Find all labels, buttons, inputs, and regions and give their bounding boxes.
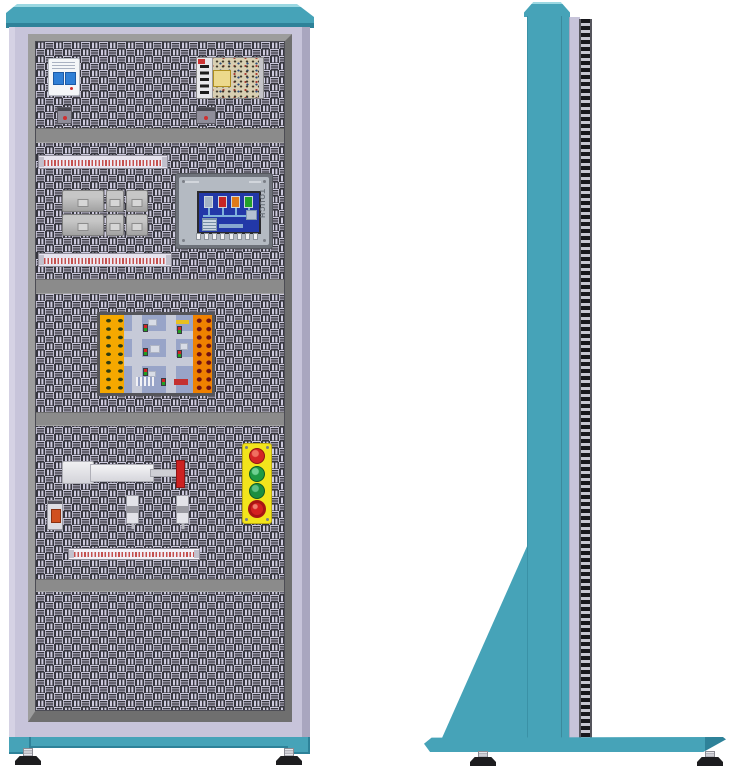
relay-block bbox=[126, 190, 148, 212]
relay-block bbox=[62, 214, 104, 236]
panel-divider bbox=[36, 412, 284, 426]
traffic-light-icon bbox=[162, 379, 165, 385]
hmi-model-mark bbox=[249, 181, 261, 183]
cabinet-base-strip bbox=[9, 737, 310, 748]
hmi-bezel: TOUCH bbox=[179, 177, 269, 245]
strip-end-bracket bbox=[194, 550, 199, 558]
hmi-key bbox=[253, 233, 258, 240]
relay-block bbox=[106, 214, 124, 236]
relay-block bbox=[126, 214, 148, 236]
traffic-training-board bbox=[97, 312, 215, 396]
indicator-window bbox=[51, 509, 61, 523]
crosswalk-graphic bbox=[136, 377, 156, 386]
breaker-indicator bbox=[70, 87, 73, 90]
side-perforated-edge bbox=[579, 19, 592, 738]
panel-divider bbox=[36, 279, 284, 294]
hmi-key bbox=[204, 233, 209, 240]
push-button-station bbox=[242, 443, 272, 524]
leveling-foot bbox=[470, 751, 496, 766]
hmi-brand-mark bbox=[185, 181, 199, 183]
building-graphic bbox=[148, 319, 157, 326]
breaker-markings bbox=[52, 62, 75, 69]
cabinet-top-cap bbox=[6, 4, 314, 28]
board-io-column-left bbox=[100, 315, 124, 393]
psu-terminal-strip bbox=[197, 58, 213, 98]
terminal-block-marker bbox=[63, 116, 67, 120]
green-button bbox=[249, 483, 265, 499]
strip-terminals bbox=[44, 258, 166, 264]
road-graphic bbox=[124, 357, 193, 366]
building-graphic bbox=[180, 343, 188, 350]
screw-icon bbox=[263, 239, 266, 242]
panel-divider bbox=[36, 128, 284, 143]
cabinet-illustration: TOUCH bbox=[0, 0, 730, 766]
traffic-light-icon bbox=[178, 351, 181, 357]
board-yellow-bar bbox=[176, 320, 189, 324]
hmi-tank-graphic bbox=[218, 196, 227, 208]
screw-icon bbox=[182, 239, 185, 242]
building-graphic bbox=[150, 345, 160, 353]
screw-icon bbox=[266, 446, 269, 449]
hmi-key bbox=[196, 233, 201, 240]
hmi-tank-graphic bbox=[244, 196, 253, 208]
hmi-legend-box bbox=[202, 218, 217, 231]
traffic-light-icon bbox=[144, 369, 147, 375]
screw-icon bbox=[263, 180, 266, 183]
psu-label bbox=[198, 59, 205, 64]
leveling-foot bbox=[697, 751, 723, 766]
din-terminal-strip bbox=[68, 548, 200, 560]
hmi-key bbox=[212, 233, 217, 240]
foot-pad bbox=[470, 757, 496, 766]
hmi-key bbox=[220, 233, 225, 240]
hmi-key bbox=[245, 233, 250, 240]
terminal-block bbox=[196, 107, 216, 124]
breaker-toggle bbox=[65, 72, 76, 85]
din-terminal-strip bbox=[38, 155, 168, 169]
sensor-stem bbox=[131, 523, 134, 529]
cylinder-flag bbox=[176, 460, 185, 488]
din-terminal-strip bbox=[38, 253, 172, 267]
strip-terminals bbox=[74, 552, 194, 557]
traffic-light-icon bbox=[178, 327, 181, 333]
sensor-band bbox=[177, 506, 188, 513]
strip-end-bracket bbox=[166, 255, 171, 265]
hmi-touch-panel: TOUCH bbox=[175, 173, 273, 249]
side-column-seam bbox=[561, 16, 562, 738]
side-base-plate bbox=[424, 737, 726, 752]
indicator-cap bbox=[48, 501, 62, 504]
traffic-light-icon bbox=[144, 325, 147, 331]
hmi-touch-label: TOUCH bbox=[258, 189, 265, 231]
road-graphic bbox=[124, 331, 193, 339]
hmi-screen bbox=[197, 191, 261, 234]
panel-divider bbox=[36, 579, 284, 592]
psu-transformer bbox=[213, 70, 231, 87]
terminal-block-marker bbox=[204, 116, 208, 120]
sensor-band bbox=[127, 506, 138, 513]
screw-icon bbox=[245, 518, 248, 521]
green-button bbox=[249, 466, 265, 482]
hmi-function-keys bbox=[196, 233, 258, 240]
red-button bbox=[249, 448, 265, 464]
leveling-foot bbox=[15, 748, 41, 765]
strip-terminals bbox=[44, 160, 162, 166]
screw-icon bbox=[266, 518, 269, 521]
terminal-block-cap bbox=[197, 108, 215, 111]
strip-end-bracket bbox=[162, 157, 167, 167]
relay-block bbox=[106, 190, 124, 212]
hmi-key bbox=[229, 233, 234, 240]
relay-block bbox=[62, 190, 104, 212]
hmi-key bbox=[237, 233, 242, 240]
board-io-column-right bbox=[193, 315, 212, 393]
board-red-label bbox=[174, 379, 188, 385]
screw-icon bbox=[245, 446, 248, 449]
terminal-block-cap bbox=[58, 108, 71, 111]
board-street-map bbox=[124, 315, 193, 393]
support-gusset bbox=[442, 544, 528, 738]
hmi-pipe-graphic bbox=[235, 208, 237, 215]
hmi-pipe-graphic bbox=[208, 208, 210, 215]
proximity-sensor bbox=[176, 495, 189, 524]
hmi-tank-graphic bbox=[231, 196, 240, 208]
indicator-module bbox=[47, 500, 63, 530]
proximity-sensor bbox=[126, 495, 139, 524]
leveling-foot bbox=[276, 748, 302, 765]
pneumatic-cylinder bbox=[90, 464, 154, 482]
traffic-light-icon bbox=[144, 349, 147, 355]
foot-pad bbox=[276, 756, 302, 765]
foot-pad bbox=[15, 756, 41, 765]
hmi-pipe-graphic bbox=[222, 208, 224, 215]
emergency-stop-button bbox=[248, 500, 266, 518]
sensor-stem bbox=[181, 523, 184, 529]
breaker-toggle bbox=[53, 72, 64, 85]
hmi-vessel-graphic bbox=[246, 210, 257, 220]
psu-chassis-edge bbox=[259, 58, 263, 98]
psu-terminals bbox=[200, 65, 209, 95]
foot-pad bbox=[697, 757, 723, 766]
hmi-conveyor-graphic bbox=[219, 224, 243, 228]
side-top-cap bbox=[524, 2, 570, 17]
circuit-breaker bbox=[48, 58, 80, 96]
terminal-block bbox=[57, 107, 72, 124]
power-supply bbox=[196, 57, 264, 99]
hmi-tank-graphic bbox=[204, 196, 213, 208]
side-column bbox=[527, 16, 570, 738]
